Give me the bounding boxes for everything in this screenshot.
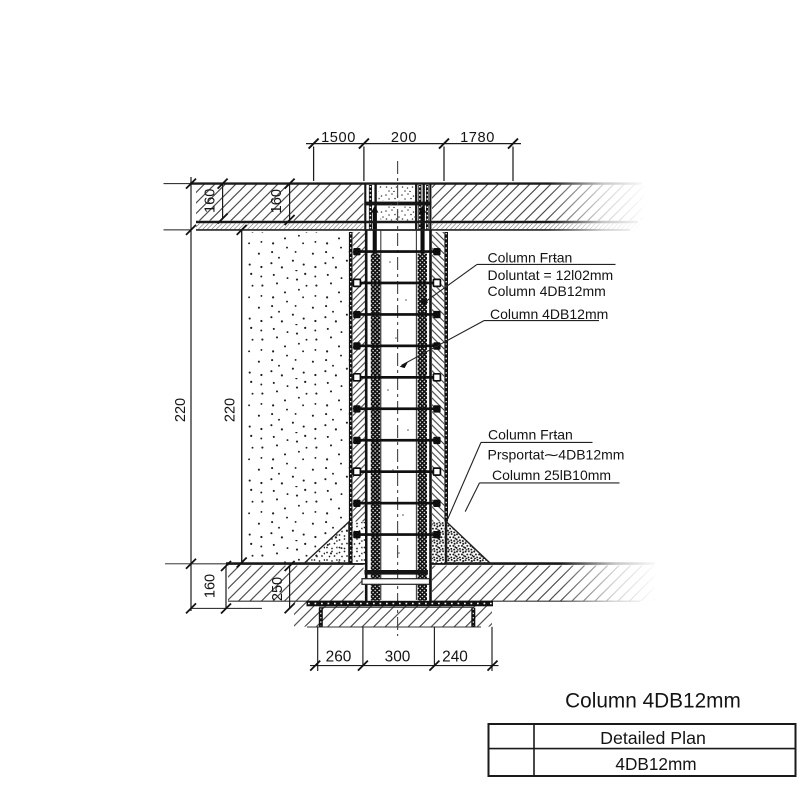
svg-text:220: 220	[173, 398, 189, 422]
svg-text:220: 220	[223, 398, 239, 422]
svg-text:240: 240	[442, 649, 468, 666]
svg-text:4DB12mm: 4DB12mm	[615, 754, 696, 774]
svg-text:1780: 1780	[460, 130, 495, 146]
svg-text:Column 4DB12mm: Column 4DB12mm	[488, 283, 606, 299]
svg-text:160: 160	[269, 189, 285, 213]
svg-text:160: 160	[203, 574, 219, 598]
svg-text:160: 160	[203, 189, 219, 213]
svg-text:Prsportat⁓4DB12mm: Prsportat⁓4DB12mm	[488, 446, 625, 462]
svg-text:Column 25lB10mm: Column 25lB10mm	[492, 467, 611, 483]
svg-text:Column 4DB12mm: Column 4DB12mm	[490, 306, 608, 322]
svg-text:Doluntat = 12l02mm: Doluntat = 12l02mm	[488, 267, 614, 283]
svg-text:Detailed Plan: Detailed Plan	[600, 728, 706, 748]
svg-text:Column Frŧan: Column Frŧan	[488, 250, 573, 266]
svg-text:300: 300	[385, 649, 411, 666]
svg-text:1500: 1500	[321, 130, 356, 146]
svg-text:200: 200	[391, 130, 417, 146]
svg-text:250: 250	[270, 577, 286, 601]
svg-text:Column Frŧan: Column Frŧan	[488, 427, 573, 443]
svg-text:260: 260	[326, 649, 352, 666]
svg-text:Column 4DB12mm: Column 4DB12mm	[565, 690, 741, 713]
